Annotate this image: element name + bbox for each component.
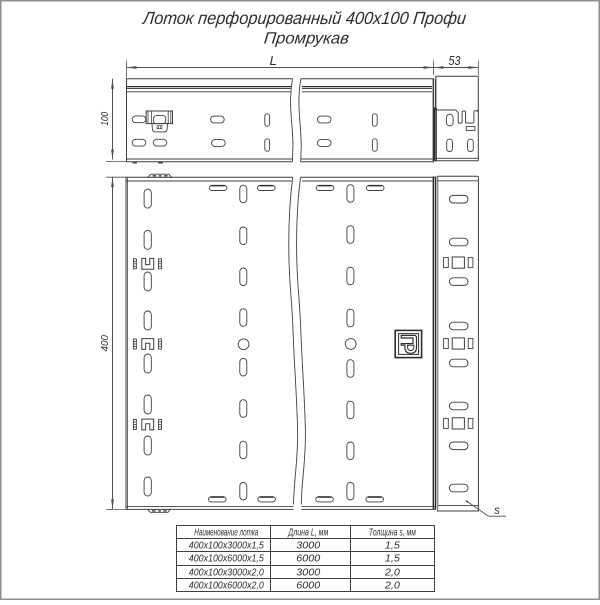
svg-text:400х100х6000х1,5: 400х100х6000х1,5 <box>189 554 264 565</box>
svg-text:6000: 6000 <box>296 554 320 565</box>
svg-text:L: L <box>270 53 277 68</box>
svg-text:100: 100 <box>100 112 111 126</box>
svg-text:Толщина s, мм: Толщина s, мм <box>369 528 416 539</box>
svg-text:400: 400 <box>100 335 111 352</box>
svg-text:Промрукав: Промрукав <box>263 29 350 47</box>
svg-text:s: s <box>494 505 500 517</box>
svg-text:6000: 6000 <box>296 581 320 592</box>
svg-text:400х100х3000х1,5: 400х100х3000х1,5 <box>189 541 264 552</box>
svg-text:3000: 3000 <box>296 541 320 552</box>
svg-text:Длина L, мм: Длина L, мм <box>288 528 329 539</box>
svg-text:1,5: 1,5 <box>385 541 400 552</box>
svg-text:1,5: 1,5 <box>385 554 400 565</box>
svg-text:Наименование лотка: Наименование лотка <box>194 528 258 539</box>
svg-text:53: 53 <box>449 54 461 68</box>
svg-text:400х100х3000х2,0: 400х100х3000х2,0 <box>189 568 264 579</box>
svg-text:2,0: 2,0 <box>384 581 401 592</box>
svg-text:400х100х6000х2,0: 400х100х6000х2,0 <box>189 581 264 592</box>
svg-text:Лоток перфорированный 400х100: Лоток перфорированный 400х100 Профи <box>141 8 467 28</box>
svg-text:2,0: 2,0 <box>384 568 401 579</box>
svg-text:3000: 3000 <box>296 568 320 579</box>
